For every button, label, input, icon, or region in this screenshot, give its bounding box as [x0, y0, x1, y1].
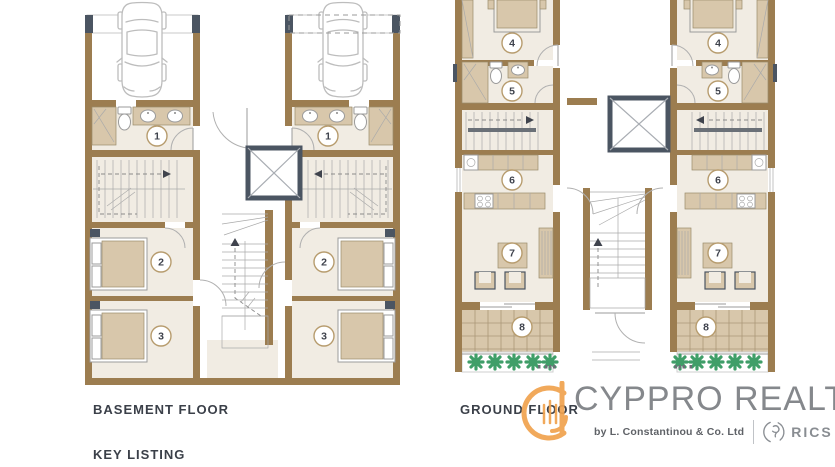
room-label-4: 4: [708, 33, 728, 53]
svg-text:7: 7: [715, 248, 721, 260]
svg-text:2: 2: [321, 257, 327, 269]
svg-text:4: 4: [509, 38, 515, 50]
room-label-7: 7: [708, 243, 728, 263]
central-corridor: [567, 98, 668, 360]
room-label-8: 8: [696, 317, 716, 337]
ground-floor-plan: 4 5 6 7 8 4 5 6 7 8: [453, 0, 777, 372]
room-label-3: 3: [151, 326, 171, 346]
svg-text:3: 3: [321, 331, 327, 343]
room-label-1: 1: [318, 126, 338, 146]
cyppro-monogram-icon: [518, 381, 580, 447]
svg-text:1: 1: [154, 131, 160, 143]
floorplan-page: 1 2 3 1 2 3: [0, 0, 835, 467]
svg-text:8: 8: [703, 322, 709, 334]
svg-text:4: 4: [715, 38, 721, 50]
svg-text:2: 2: [158, 257, 164, 269]
room-label-5: 5: [708, 81, 728, 101]
svg-text:3: 3: [158, 331, 164, 343]
basement-floor-plan: 1 2 3 1 2 3: [85, 3, 400, 386]
logo-divider: [753, 420, 754, 444]
svg-text:5: 5: [509, 86, 515, 98]
room-label-6: 6: [708, 170, 728, 190]
room-label-1: 1: [147, 126, 167, 146]
basement-floor-title: BASEMENT FLOOR: [93, 402, 229, 417]
svg-text:6: 6: [715, 175, 721, 187]
elevator: [248, 148, 300, 198]
rics-label: RICS: [791, 424, 832, 440]
svg-text:7: 7: [509, 248, 515, 260]
cyppro-realty-logo: CYPPRO REALTY by L. Constantinou & Co. L…: [518, 379, 835, 459]
room-label-4: 4: [502, 33, 522, 53]
room-label-2: 2: [151, 252, 171, 272]
central-staircase: [583, 188, 652, 310]
room-label-3: 3: [314, 326, 334, 346]
room-label-2: 2: [314, 252, 334, 272]
svg-text:6: 6: [509, 175, 515, 187]
rics-lion-icon: [763, 420, 787, 444]
brand-name: CYPPRO REALTY: [574, 379, 835, 419]
room-label-8: 8: [512, 317, 532, 337]
svg-text:5: 5: [715, 86, 721, 98]
elevator: [610, 98, 668, 150]
room-label-5: 5: [502, 81, 522, 101]
room-label-7: 7: [502, 243, 522, 263]
svg-text:8: 8: [519, 322, 525, 334]
key-listing-title: KEY LISTING: [93, 447, 185, 462]
brand-byline: by L. Constantinou & Co. Ltd: [594, 426, 744, 438]
svg-text:1: 1: [325, 131, 331, 143]
room-label-6: 6: [502, 170, 522, 190]
central-staircase: [222, 210, 273, 348]
